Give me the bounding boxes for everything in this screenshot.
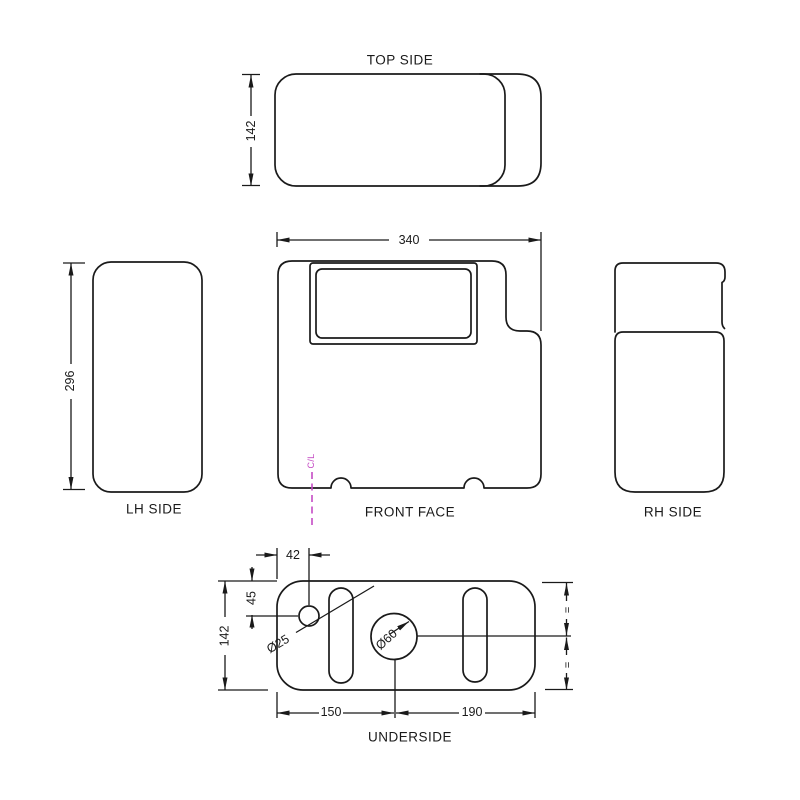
hole-offset-x-dim-text: 42 [286, 548, 300, 562]
rh-view-upper-outline [615, 263, 725, 332]
underside-view: Ø25 Ø60 42 45 142 150 190 = [218, 548, 574, 745]
front-view: 340 C/L FRONT FACE [277, 232, 541, 527]
lh-view: 296 LH SIDE [63, 262, 202, 517]
hole-center-from-left-dim-text: 150 [321, 705, 342, 719]
underside-small-hole [299, 606, 319, 626]
top-view-right-section-outline [480, 74, 541, 186]
technical-drawing-page: TOP SIDE 142 340 C/L FRONT FACE 296 LH S… [0, 0, 800, 800]
top-view: TOP SIDE 142 [242, 53, 541, 187]
hole-center-to-right-dim-text: 190 [462, 705, 483, 719]
top-depth-dim-text: 142 [244, 121, 258, 142]
underside-right-slot [463, 588, 487, 682]
top-view-body-outline [275, 74, 505, 186]
front-centerline-label: C/L [306, 454, 316, 469]
underside-view-label: UNDERSIDE [368, 730, 452, 745]
front-width-dim-text: 340 [399, 233, 420, 247]
underside-depth-dim-text: 142 [218, 626, 232, 647]
rh-view: RH SIDE [615, 263, 725, 520]
front-view-lid-recess-inner [316, 269, 471, 338]
rh-view-lower-outline [615, 332, 724, 492]
engineering-drawing: TOP SIDE 142 340 C/L FRONT FACE 296 LH S… [0, 0, 800, 800]
rh-view-label: RH SIDE [644, 505, 702, 520]
lh-view-label: LH SIDE [126, 502, 182, 517]
small-hole-dia-text: Ø25 [264, 632, 292, 656]
lh-view-outline [93, 262, 202, 492]
top-view-label: TOP SIDE [367, 53, 434, 68]
side-height-dim-text: 296 [63, 371, 77, 392]
front-view-label: FRONT FACE [365, 505, 455, 520]
bottom-dims-extension-lines [277, 660, 535, 718]
front-view-lid-recess-outer [310, 263, 477, 344]
underside-left-slot [329, 588, 353, 683]
hole-offset-y-dim-text: 45 [245, 591, 259, 605]
front-view-outline [278, 261, 541, 488]
equal-spacing-mark-upper: = [561, 607, 573, 613]
small-hole-leader-line [296, 586, 374, 633]
equal-spacing-mark-lower: = [561, 662, 573, 668]
